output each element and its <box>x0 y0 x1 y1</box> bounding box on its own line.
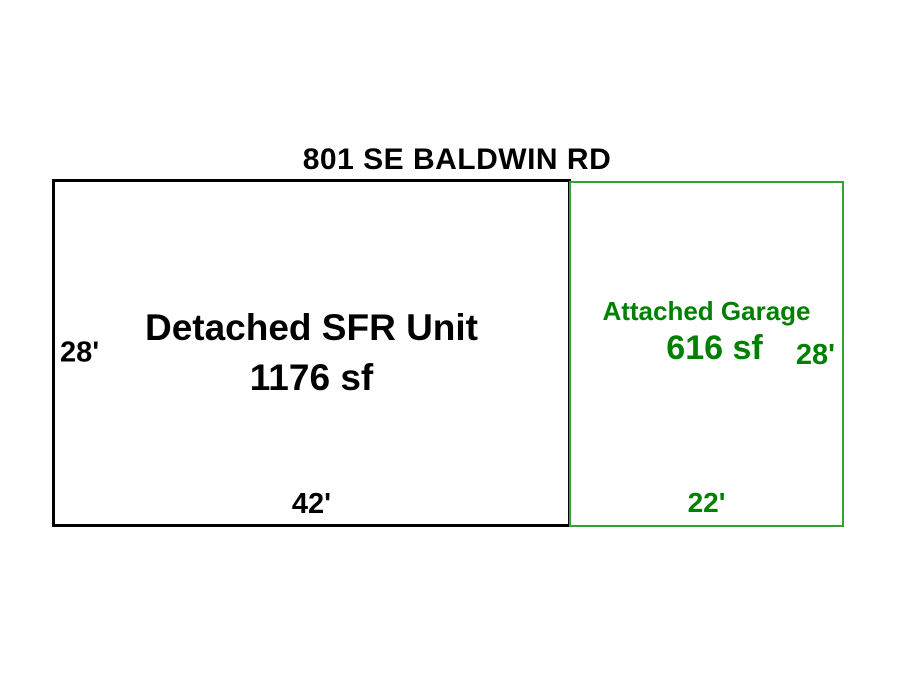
detached-sfr-bottom-dimension: 42' <box>55 488 568 521</box>
detached-sfr-rect: Detached SFR Unit 1176 sf 28' 42' <box>52 179 571 527</box>
attached-garage-name: Attached Garage <box>571 296 842 327</box>
property-sketch-canvas: 801 SE BALDWIN RD Detached SFR Unit 1176… <box>0 0 900 675</box>
attached-garage-rect: Attached Garage 616 sf 28' 22' <box>569 181 844 527</box>
attached-garage-side-dimension: 28' <box>796 339 835 372</box>
property-address-title: 801 SE BALDWIN RD <box>52 143 862 177</box>
detached-sfr-side-dimension: 28' <box>60 337 99 370</box>
detached-sfr-label-block: Detached SFR Unit 1176 sf <box>55 303 568 403</box>
attached-garage-bottom-dimension: 22' <box>571 487 842 519</box>
detached-sfr-area: 1176 sf <box>55 353 568 403</box>
detached-sfr-name: Detached SFR Unit <box>55 303 568 353</box>
